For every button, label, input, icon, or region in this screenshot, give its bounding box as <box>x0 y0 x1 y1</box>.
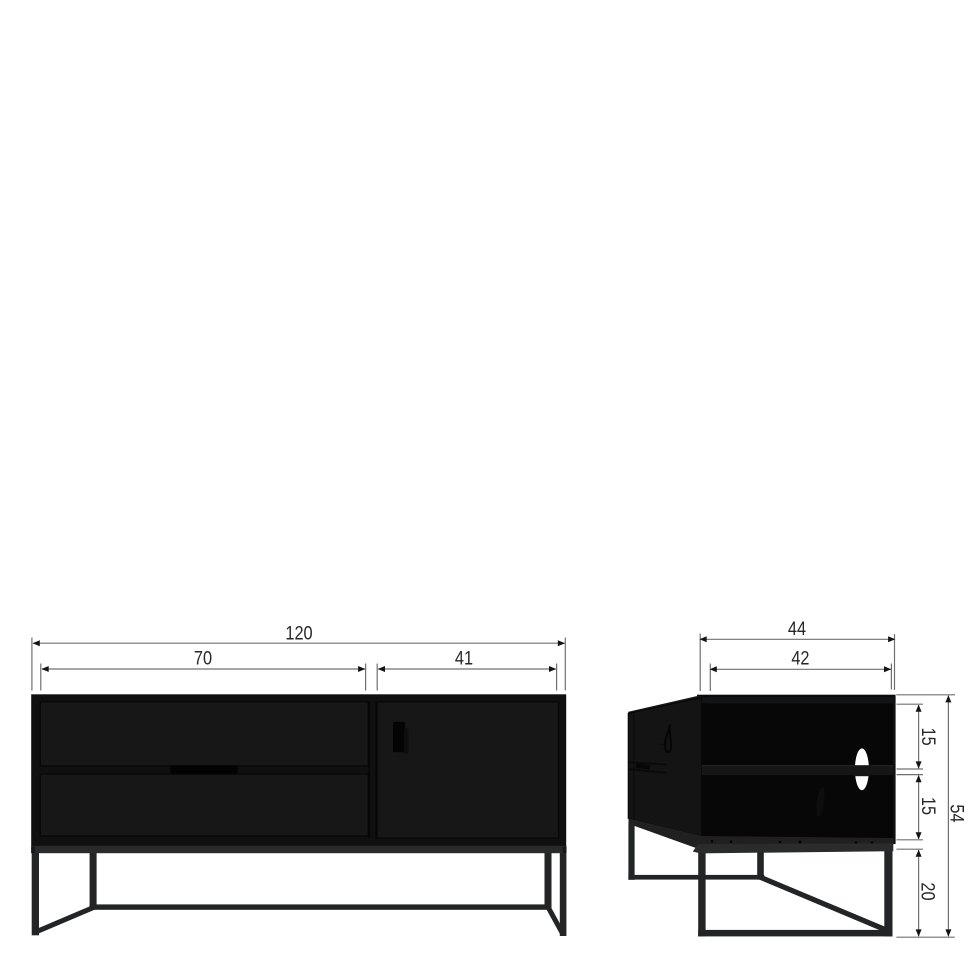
svg-text:41: 41 <box>455 647 473 668</box>
svg-text:70: 70 <box>194 647 212 668</box>
svg-text:42: 42 <box>791 647 809 668</box>
svg-text:54: 54 <box>946 804 967 822</box>
svg-text:120: 120 <box>285 622 312 643</box>
svg-text:20: 20 <box>917 882 938 900</box>
svg-text:15: 15 <box>918 797 939 815</box>
svg-text:15: 15 <box>918 728 939 746</box>
svg-text:44: 44 <box>788 618 806 639</box>
